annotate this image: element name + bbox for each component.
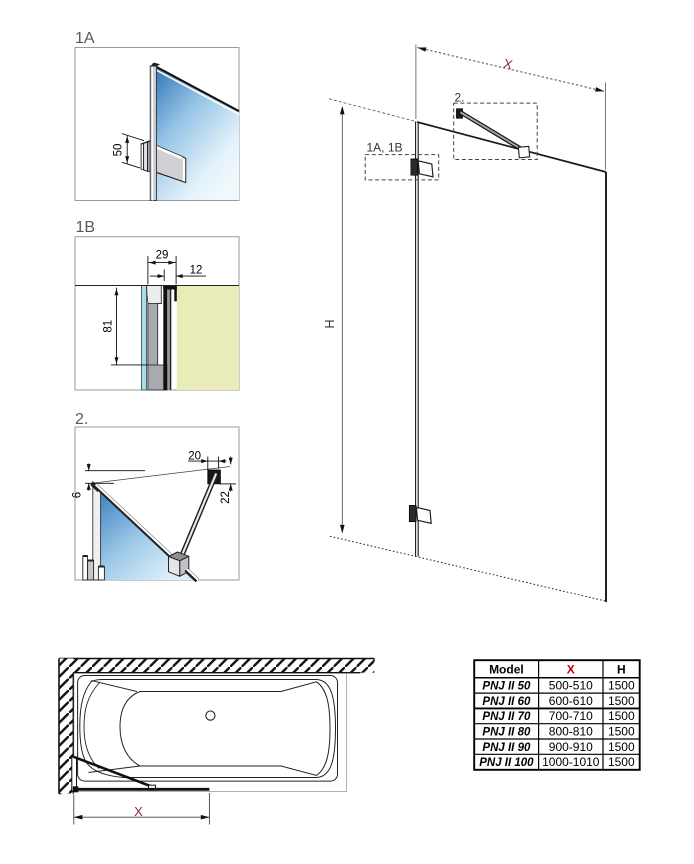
svg-text:2.: 2.	[75, 411, 88, 428]
svg-text:50: 50	[113, 144, 125, 157]
svg-text:900-910: 900-910	[549, 740, 593, 754]
svg-text:1500: 1500	[608, 755, 635, 769]
svg-text:81: 81	[103, 320, 115, 333]
svg-text:1500: 1500	[608, 725, 635, 739]
svg-text:PNJ II 50: PNJ II 50	[482, 681, 531, 693]
svg-text:H: H	[323, 319, 337, 328]
svg-text:2.: 2.	[455, 91, 465, 105]
svg-text:600-610: 600-610	[549, 694, 593, 708]
svg-text:500-510: 500-510	[549, 679, 593, 693]
svg-text:12: 12	[190, 265, 203, 277]
svg-text:PNJ II 90: PNJ II 90	[482, 742, 531, 754]
svg-text:1500: 1500	[608, 740, 635, 754]
svg-text:Model: Model	[489, 663, 524, 677]
svg-text:22: 22	[220, 491, 232, 504]
svg-text:X: X	[567, 663, 575, 677]
svg-text:1500: 1500	[608, 679, 635, 693]
svg-text:PNJ II 70: PNJ II 70	[482, 711, 531, 723]
svg-text:800-810: 800-810	[549, 725, 593, 739]
svg-text:1A: 1A	[75, 30, 95, 47]
svg-text:PNJ II 80: PNJ II 80	[482, 727, 531, 739]
svg-text:1000-1010: 1000-1010	[542, 755, 600, 769]
svg-text:1B: 1B	[76, 219, 96, 236]
svg-text:PNJ II 60: PNJ II 60	[482, 696, 531, 708]
svg-text:20: 20	[188, 451, 201, 463]
svg-text:1500: 1500	[608, 694, 635, 708]
svg-text:6: 6	[72, 492, 84, 498]
svg-text:29: 29	[156, 250, 169, 262]
svg-text:PNJ II 100: PNJ II 100	[479, 757, 534, 769]
svg-text:700-710: 700-710	[549, 709, 593, 723]
svg-text:1A, 1B: 1A, 1B	[367, 141, 403, 155]
svg-text:X: X	[134, 804, 143, 819]
svg-text:H: H	[617, 663, 626, 677]
svg-text:1500: 1500	[608, 709, 635, 723]
